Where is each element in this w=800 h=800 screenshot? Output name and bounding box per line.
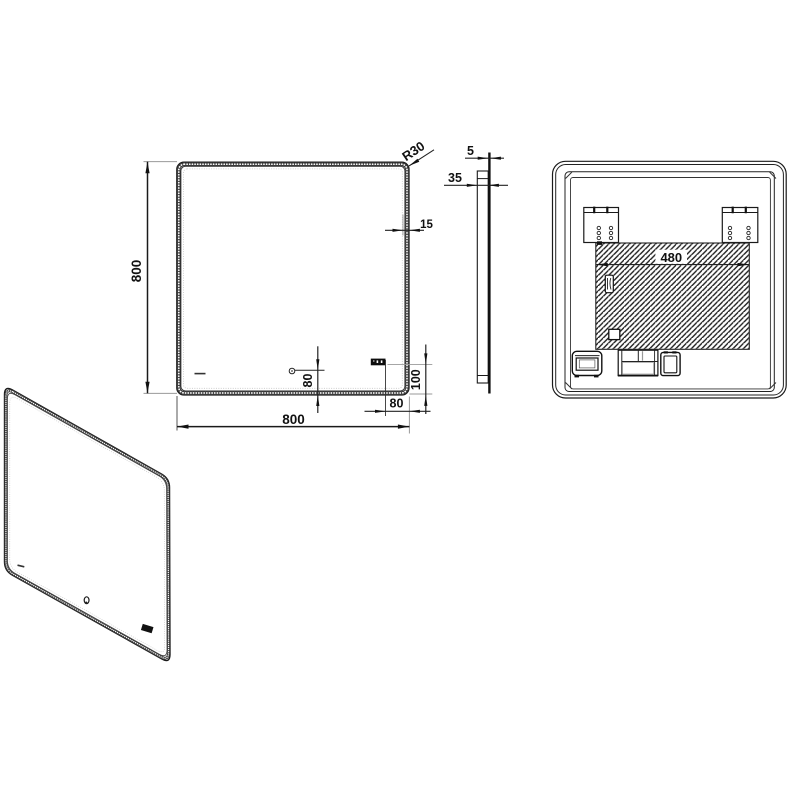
svg-text:80: 80 [301, 374, 315, 388]
svg-text:100: 100 [409, 369, 423, 390]
svg-text:15: 15 [420, 219, 433, 231]
svg-text:35: 35 [448, 171, 462, 185]
svg-text:800: 800 [129, 260, 144, 283]
svg-text:5: 5 [467, 144, 474, 158]
svg-text:80: 80 [390, 397, 404, 411]
svg-text:480: 480 [660, 250, 682, 265]
svg-text:800: 800 [282, 412, 305, 427]
